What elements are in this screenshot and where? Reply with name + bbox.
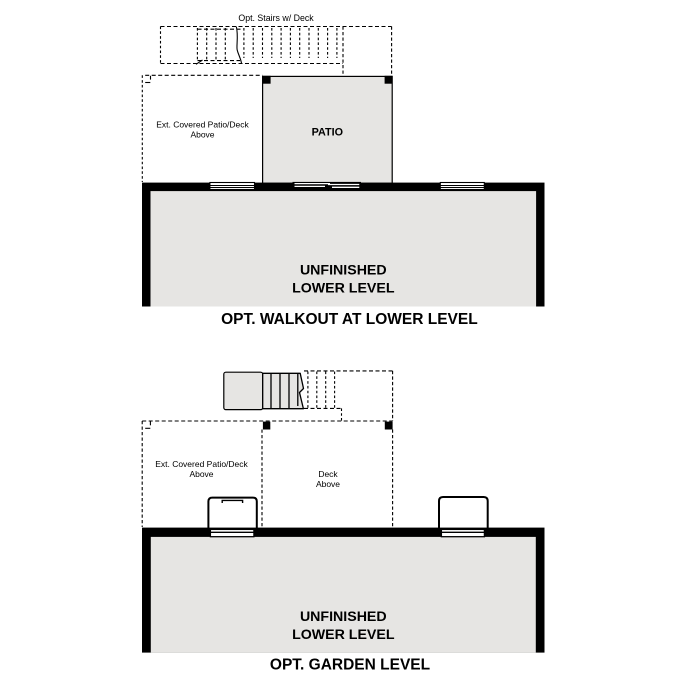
svg-text:Above: Above (190, 130, 214, 140)
svg-text:Above: Above (189, 469, 213, 479)
svg-text:LOWER LEVEL: LOWER LEVEL (292, 280, 395, 296)
svg-text:Above: Above (316, 479, 340, 489)
svg-text:Opt. Stairs w/ Deck: Opt. Stairs w/ Deck (238, 13, 314, 23)
svg-text:UNFINISHED: UNFINISHED (300, 262, 387, 278)
svg-text:Deck: Deck (318, 469, 338, 479)
svg-text:PATIO: PATIO (312, 127, 343, 139)
svg-text:OPT. GARDEN LEVEL: OPT. GARDEN LEVEL (270, 657, 430, 674)
svg-text:UNFINISHED: UNFINISHED (300, 609, 387, 625)
svg-text:OPT. WALKOUT AT LOWER LEVEL: OPT. WALKOUT AT LOWER LEVEL (221, 311, 478, 328)
svg-text:Ext. Covered Patio/Deck: Ext. Covered Patio/Deck (156, 120, 249, 130)
svg-text:LOWER LEVEL: LOWER LEVEL (292, 627, 395, 643)
svg-text:Ext. Covered Patio/Deck: Ext. Covered Patio/Deck (155, 459, 248, 469)
